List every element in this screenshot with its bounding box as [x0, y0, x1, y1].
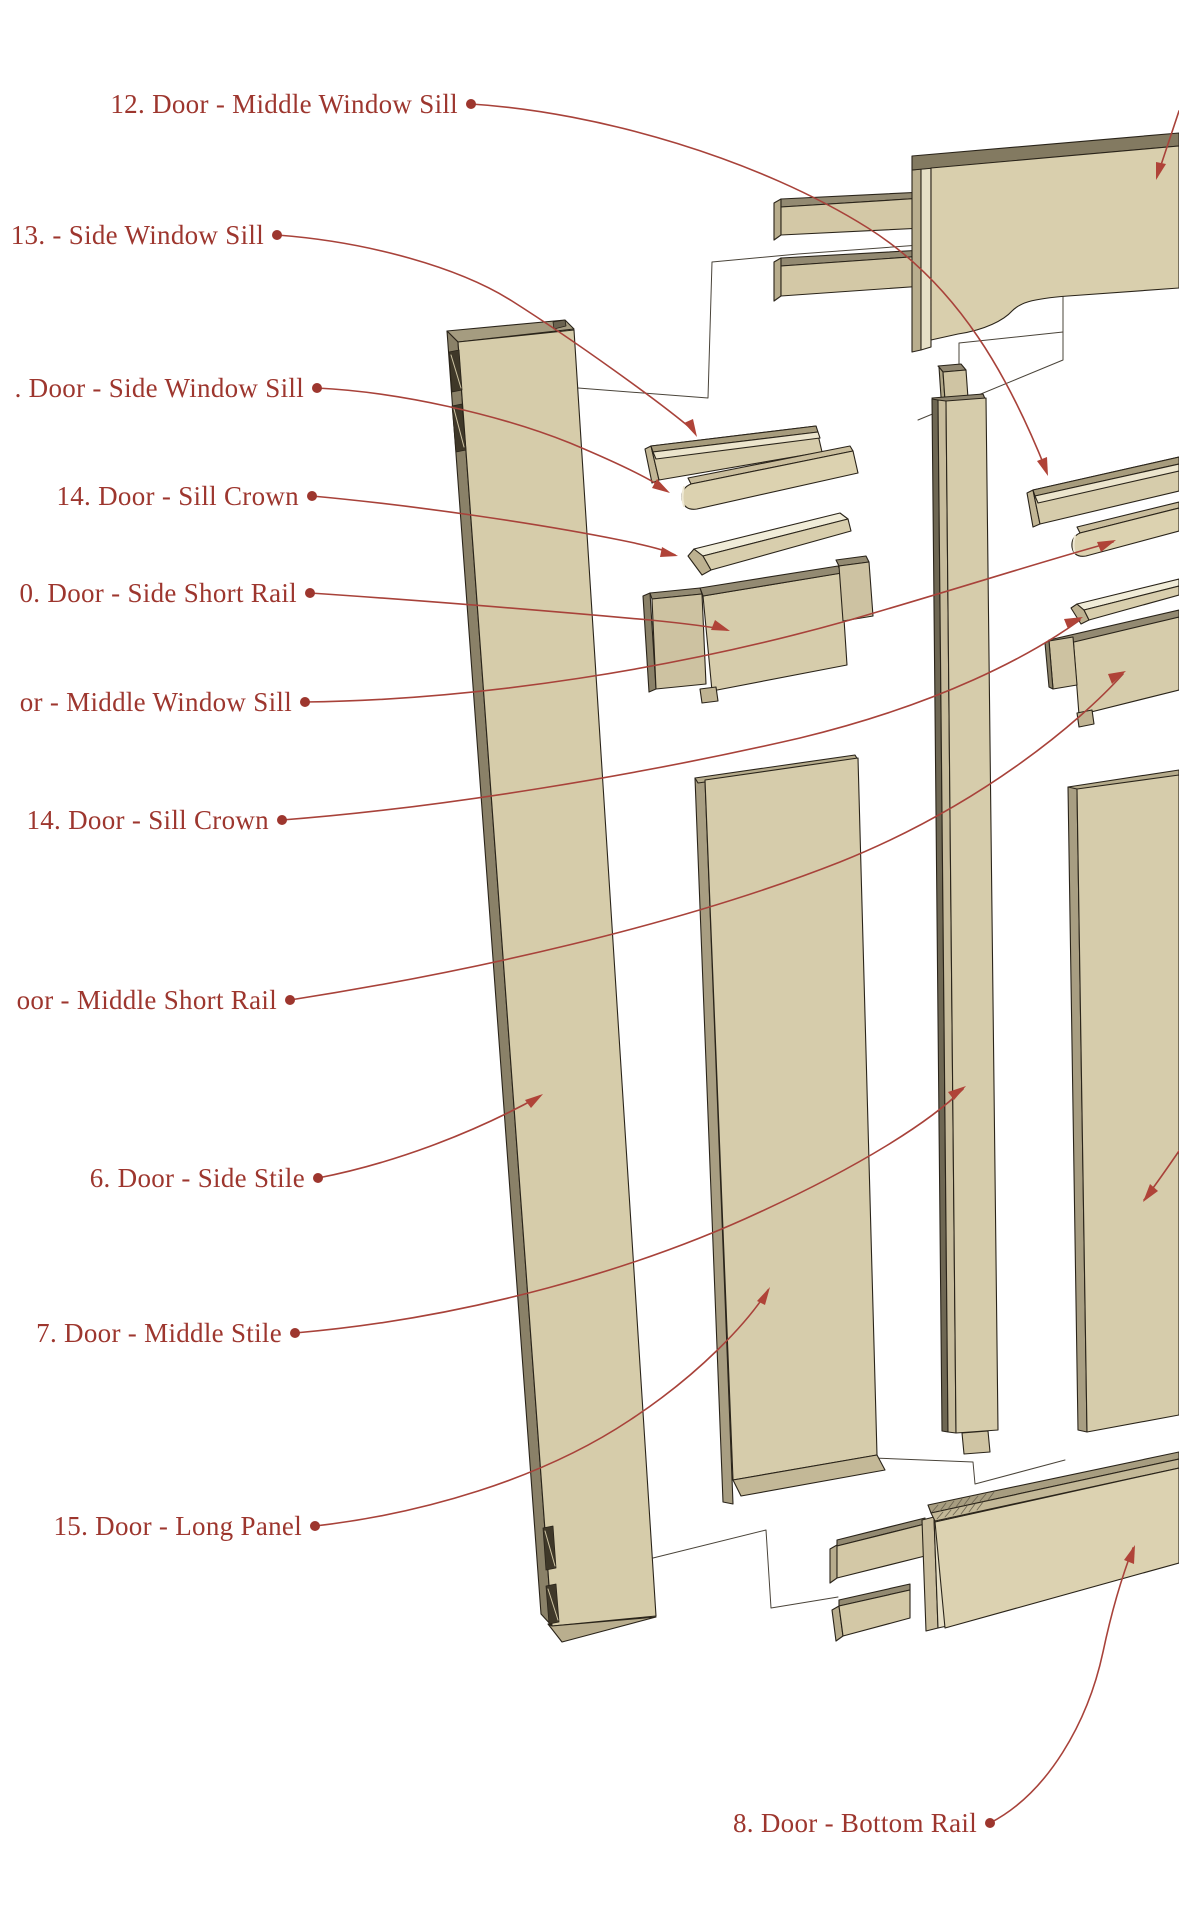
part-label-middle-short-rail: oor - Middle Short Rail — [0, 983, 277, 1017]
part-side-stile-right — [1068, 770, 1179, 1432]
part-label-middle-window-sill-bar: or - Middle Window Sill — [0, 685, 292, 719]
exploded-door-diagram — [0, 0, 1179, 1920]
part-label-middle-stile: 7. Door - Middle Stile — [0, 1316, 282, 1350]
part-label-side-window-sill: . Door - Side Window Sill — [0, 371, 304, 405]
exploded-door-diagram-page: 12. Door - Middle Window Sill 13. - Side… — [0, 0, 1179, 1920]
part-middle-stile — [932, 364, 998, 1454]
part-label-bottom-rail: 8. Door - Bottom Rail — [0, 1806, 977, 1840]
part-label-long-panel: 15. Door - Long Panel — [0, 1509, 302, 1543]
part-label-sill-crown-left: 14. Door - Sill Crown — [0, 479, 299, 513]
part-top-rail — [774, 133, 1179, 352]
part-middle-short-rail — [1045, 610, 1179, 727]
part-long-panel — [695, 755, 885, 1504]
part-bottom-rail — [830, 1452, 1179, 1641]
part-label-middle-window-sill-12: 12. Door - Middle Window Sill — [0, 87, 458, 121]
part-sill-crown-left — [688, 513, 851, 575]
part-label-sill-crown-right: 14. Door - Sill Crown — [0, 803, 269, 837]
part-label-side-window-sill-13: 13. - Side Window Sill — [0, 218, 264, 252]
part-side-stile-left — [447, 320, 656, 1642]
part-side-short-rail — [643, 556, 873, 703]
part-label-side-short-rail: 0. Door - Side Short Rail — [0, 576, 297, 610]
part-label-side-stile: 6. Door - Side Stile — [0, 1161, 305, 1195]
